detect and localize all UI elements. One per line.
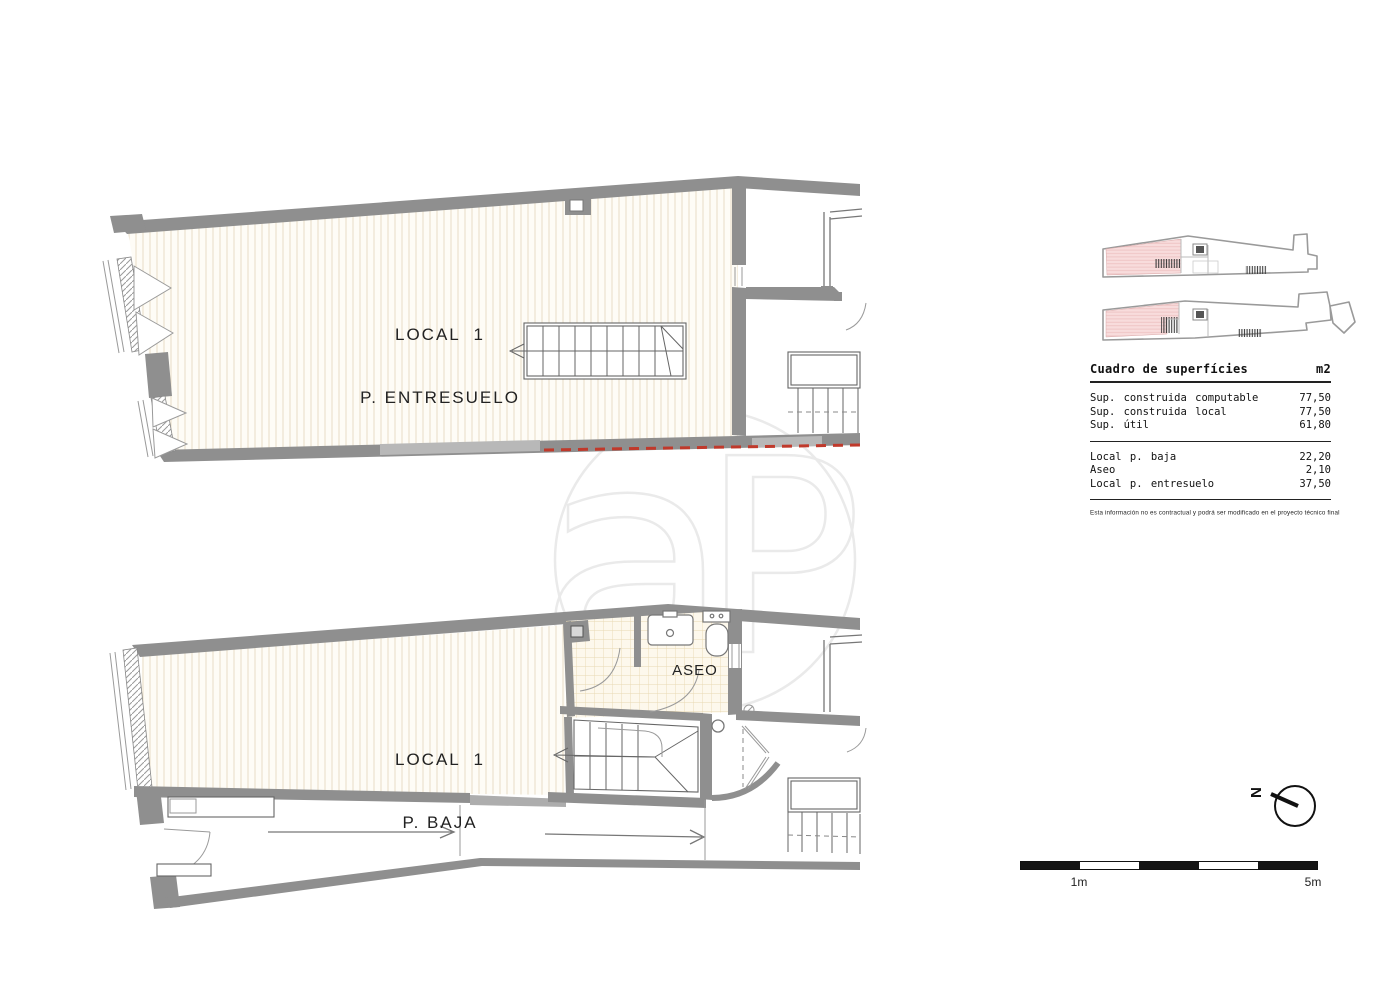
table-row: Sup. construida computable 77,50 (1090, 392, 1331, 406)
baja-bottom-wall (164, 858, 860, 908)
aseo-label: ASEO (655, 662, 735, 679)
toilet (703, 611, 730, 656)
reception-counter (157, 797, 274, 876)
baja-label: LOCAL 1 P. BAJA (330, 707, 550, 854)
curved-wall (712, 763, 778, 798)
table-title: Cuadro de superfícies (1090, 362, 1248, 376)
neighbor-stairs (788, 778, 860, 854)
table-row: Local p. baja 22,20 (1090, 451, 1331, 465)
table-separator (1090, 441, 1331, 442)
table-disclaimer: Esta información no es contractual y pod… (1090, 509, 1331, 516)
north-label: N (1247, 787, 1264, 798)
entresuelo-label-line2: P. ENTRESUELO (330, 387, 550, 408)
scale-bar-graphic (1020, 861, 1318, 870)
table-unit: m2 (1316, 362, 1331, 376)
table-row: Sup. útil 61,80 (1090, 419, 1331, 433)
door-arc (846, 303, 866, 330)
table-row: Aseo 2,10 (1090, 464, 1331, 478)
baja-label-line2: P. BAJA (330, 812, 550, 833)
entresuelo-label: LOCAL 1 P. ENTRESUELO (330, 282, 550, 429)
table-separator (1090, 499, 1331, 500)
surfaces-table: Cuadro de superfícies m2 Sup. construida… (1090, 362, 1331, 518)
table-header: Cuadro de superfícies m2 (1090, 362, 1331, 383)
stair-hatch (1238, 329, 1262, 337)
sink (648, 611, 693, 645)
scale-label-5m: 5m (1293, 875, 1333, 889)
stair-hatch (1155, 259, 1180, 268)
key-plan-lower (1103, 292, 1355, 340)
key-plan-upper (1103, 234, 1317, 277)
entresuelo-label-line1: LOCAL 1 (330, 324, 550, 345)
direction-arrow (545, 830, 704, 844)
table-row: Local p. entresuelo 37,50 (1090, 478, 1331, 492)
floor-plan-page: a P (0, 0, 1400, 990)
north-indicator (1271, 786, 1315, 826)
entrance-door-leaf (164, 829, 210, 832)
entresuelo-right-rooms (732, 188, 866, 436)
window (824, 209, 862, 290)
table-row: Sup. construida local 77,50 (1090, 406, 1331, 420)
stair-hatch (1245, 266, 1267, 274)
scale-label-1m: 1m (1059, 875, 1099, 889)
baja-label-line1: LOCAL 1 (330, 749, 550, 770)
door-arc (847, 728, 866, 752)
highlighted-local-area (1106, 239, 1181, 275)
